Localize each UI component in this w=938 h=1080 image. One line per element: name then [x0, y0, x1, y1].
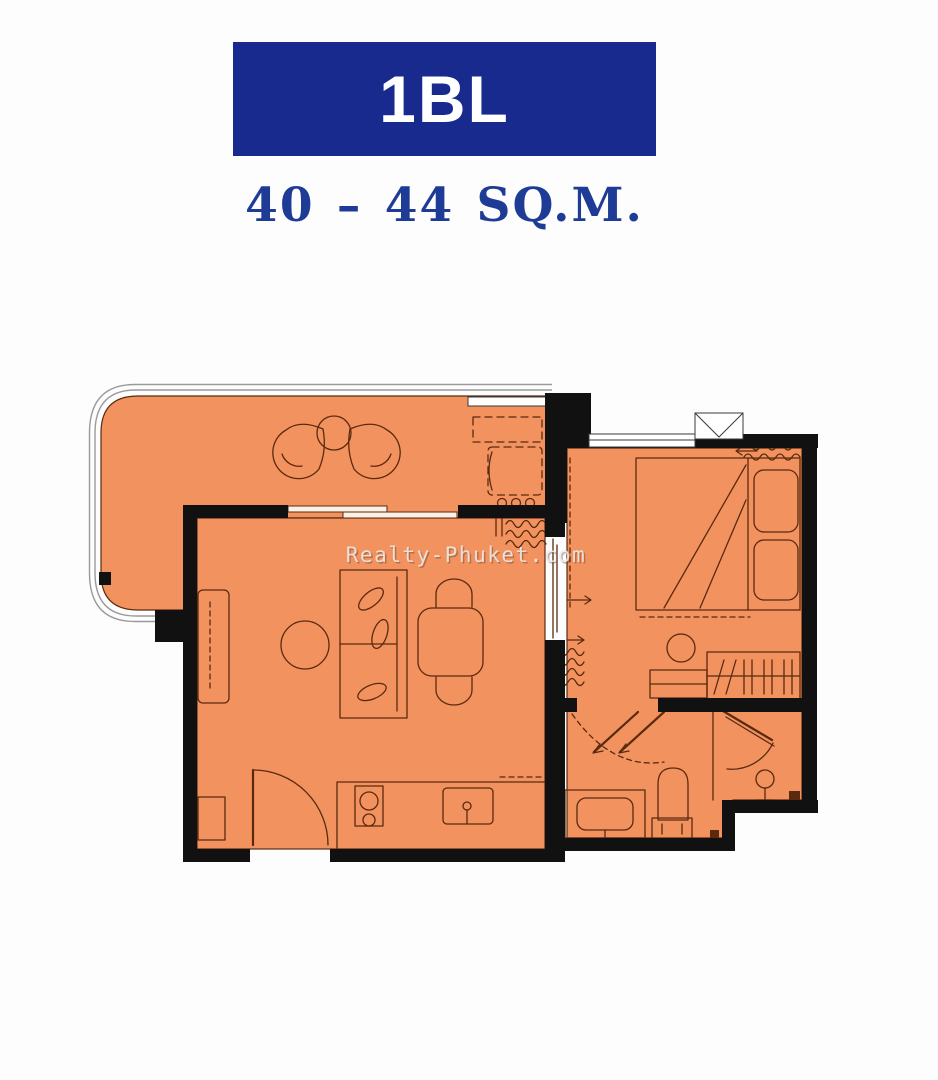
bedroom-bathroom-floor	[567, 448, 802, 838]
sliding-door-panel-1	[288, 506, 387, 512]
bedroom-window	[589, 434, 695, 447]
shower-drain	[789, 791, 800, 801]
watermark: Realty-Phuket.com	[346, 543, 586, 567]
floorplan-page: 1BL 40 – 44 SQ.M.	[0, 0, 938, 1080]
ac-condenser-unit	[695, 413, 743, 439]
floor-drain	[710, 830, 719, 839]
floor-plan-drawing: Realty-Phuket.com Realty-Phuket.com	[0, 0, 938, 1080]
sliding-door-panel-2	[343, 512, 457, 518]
planter-box	[468, 397, 548, 406]
